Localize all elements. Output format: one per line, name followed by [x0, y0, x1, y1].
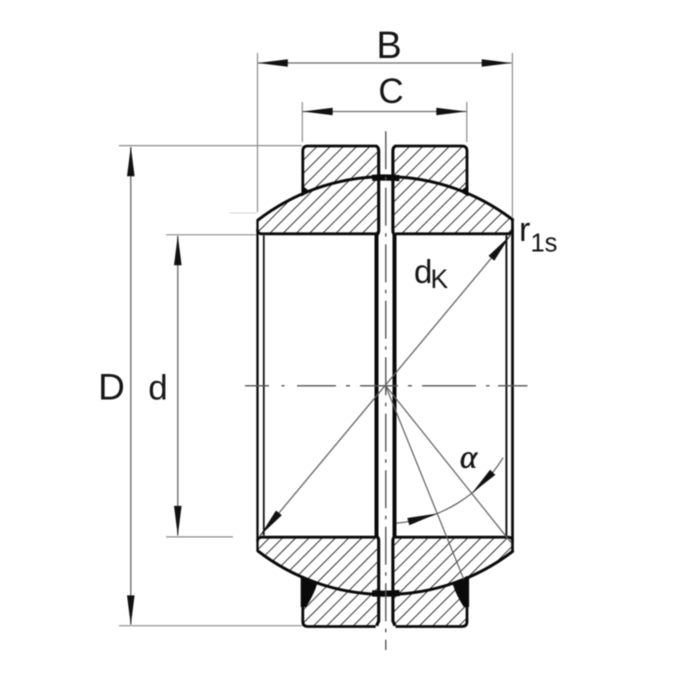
- svg-text:K: K: [431, 264, 449, 294]
- svg-text:C: C: [378, 72, 403, 111]
- svg-text:B: B: [376, 25, 401, 67]
- svg-text:D: D: [98, 367, 125, 408]
- svg-text:α: α: [460, 440, 478, 476]
- svg-text:1s: 1s: [531, 230, 558, 258]
- svg-text:r: r: [519, 211, 530, 249]
- svg-text:d: d: [148, 369, 167, 408]
